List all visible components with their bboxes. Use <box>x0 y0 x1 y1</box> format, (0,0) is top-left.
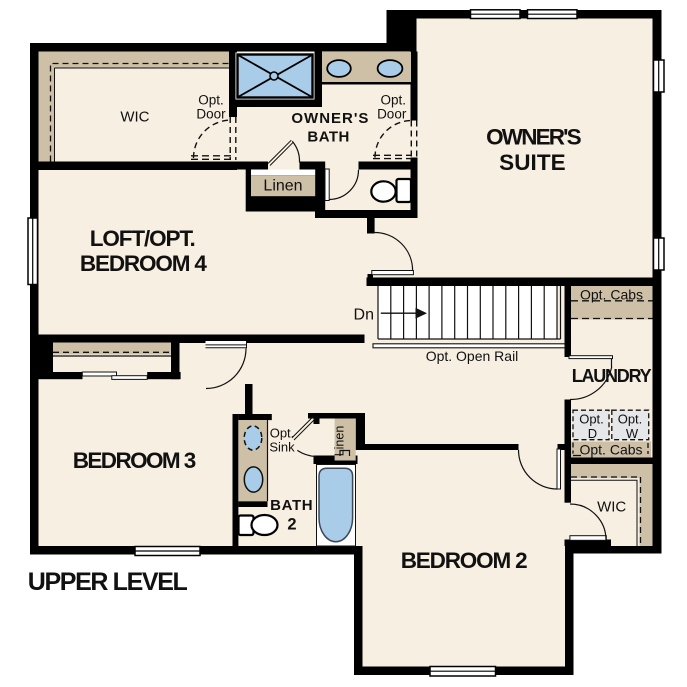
svg-text:OWNER'S: OWNER'S <box>291 110 368 127</box>
svg-text:Door: Door <box>196 107 226 122</box>
svg-text:Linen: Linen <box>333 426 347 457</box>
svg-text:Opt. Open Rail: Opt. Open Rail <box>426 348 519 364</box>
svg-text:Sink: Sink <box>269 440 295 455</box>
svg-text:Linen: Linen <box>263 178 302 195</box>
svg-text:SUITE: SUITE <box>499 150 566 175</box>
svg-text:BEDROOM 3: BEDROOM 3 <box>73 448 197 473</box>
svg-text:Dn: Dn <box>354 307 374 324</box>
svg-text:Opt.: Opt. <box>381 93 407 108</box>
svg-text:WIC: WIC <box>120 109 149 126</box>
svg-text:D: D <box>588 426 597 441</box>
svg-text:Door: Door <box>377 107 407 122</box>
svg-text:OWNER'S: OWNER'S <box>486 125 582 150</box>
svg-text:Opt.: Opt. <box>579 411 604 426</box>
svg-text:LAUNDRY: LAUNDRY <box>572 366 652 386</box>
svg-text:UPPER LEVEL: UPPER LEVEL <box>28 568 188 596</box>
svg-text:LOFT/OPT.: LOFT/OPT. <box>90 226 196 251</box>
svg-text:W: W <box>626 426 639 441</box>
svg-text:Opt.: Opt. <box>198 93 224 108</box>
svg-text:BATH: BATH <box>307 128 349 145</box>
svg-text:Opt.: Opt. <box>270 426 295 441</box>
svg-text:BEDROOM 2: BEDROOM 2 <box>401 548 528 573</box>
svg-text:2: 2 <box>287 516 296 534</box>
svg-text:WIC: WIC <box>597 498 626 515</box>
svg-text:BEDROOM 4: BEDROOM 4 <box>80 251 207 276</box>
svg-text:Opt. Cabs: Opt. Cabs <box>579 442 642 458</box>
svg-text:Opt.: Opt. <box>618 411 643 426</box>
svg-text:BATH: BATH <box>270 497 313 514</box>
svg-text:Opt. Cabs: Opt. Cabs <box>580 287 643 303</box>
